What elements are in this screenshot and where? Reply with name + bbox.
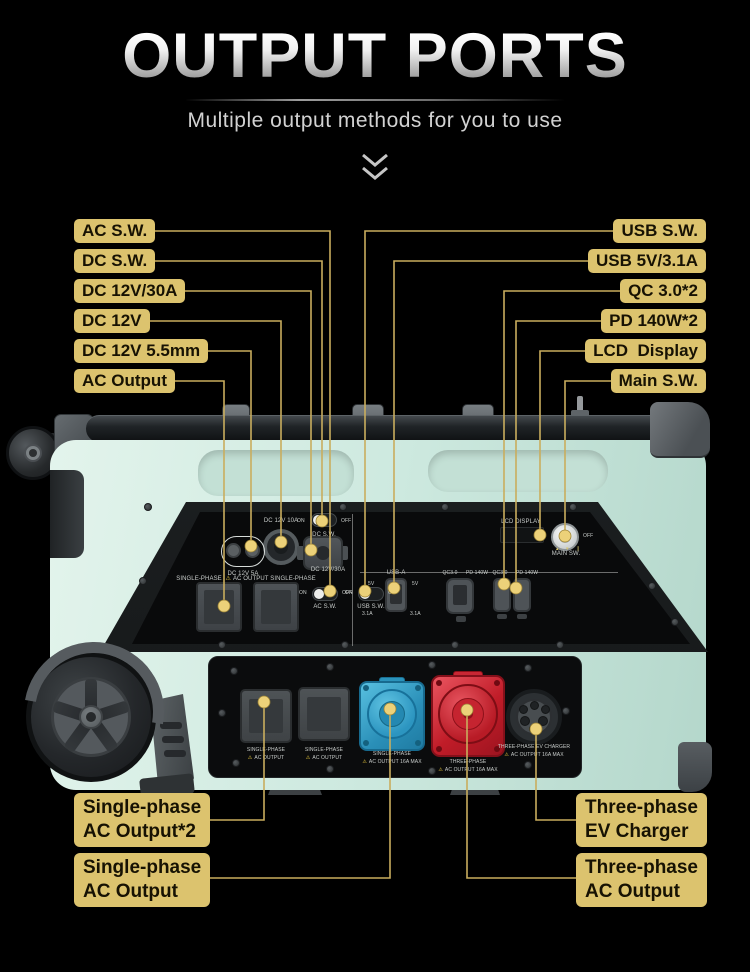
- callout-main-sw: Main S.W.: [611, 369, 706, 393]
- callout-dc-12v: DC 12V: [74, 309, 150, 333]
- callout-ac-sw: AC S.W.: [74, 219, 155, 243]
- callout-dc-12v-55mm: DC 12V 5.5mm: [74, 339, 208, 363]
- page: OUTPUT PORTS Multiple output methods for…: [0, 0, 750, 972]
- callout-usb-5v-31a: USB 5V/3.1A: [588, 249, 706, 273]
- callout-single-phase-ac-output: Single-phase AC Output: [74, 853, 210, 907]
- callout-single-phase-ac-output-x2: Single-phase AC Output*2: [74, 793, 210, 847]
- callout-usb-sw: USB S.W.: [613, 219, 706, 243]
- callout-three-phase-ac-output: Three-phase AC Output: [576, 853, 707, 907]
- callout-dc-sw: DC S.W.: [74, 249, 155, 273]
- callout-lcd-display: LCD Display: [585, 339, 706, 363]
- callout-three-phase-ev-charger: Three-phase EV Charger: [576, 793, 707, 847]
- callout-pd140w: PD 140W*2: [601, 309, 706, 333]
- callout-ac-output: AC Output: [74, 369, 175, 393]
- callout-dc-12v-30a: DC 12V/30A: [74, 279, 185, 303]
- callout-qc30: QC 3.0*2: [620, 279, 706, 303]
